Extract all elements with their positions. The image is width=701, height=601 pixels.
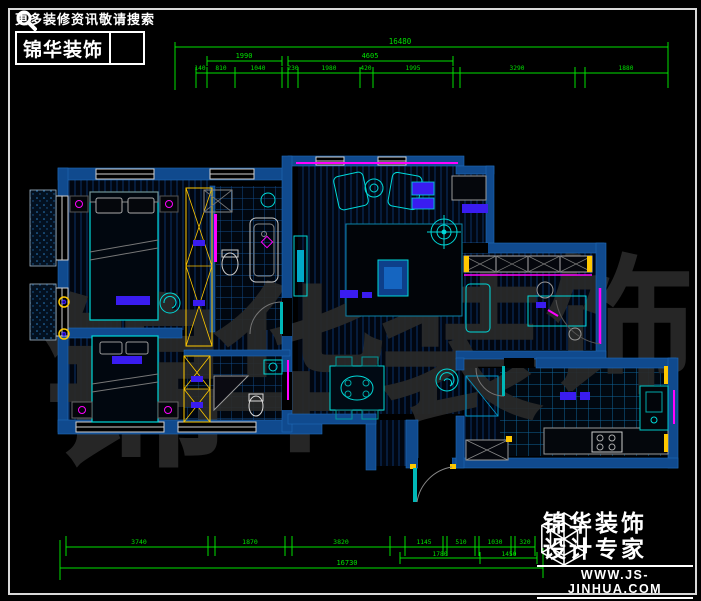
dim-label: 16480	[389, 37, 412, 46]
dim-label: 510	[455, 539, 466, 546]
dim-label: 1870	[242, 538, 258, 546]
dim-label: 1980	[322, 65, 337, 72]
dim-label: 420	[360, 65, 371, 72]
top-dimension-labels: 16480 1990 4605 140 810 1040 230 1980 42…	[194, 37, 633, 72]
logo-divider	[109, 33, 111, 63]
bottom-dimension-labels: 3740 1870 3820 1145 510 1030 320 1780 14…	[131, 538, 531, 567]
dim-label: 1030	[488, 539, 503, 546]
dim-label: 3290	[510, 65, 525, 72]
niche-cabinet	[452, 176, 486, 200]
nightstand	[70, 196, 88, 212]
dim-label: 1995	[406, 65, 421, 72]
dim-label: 320	[519, 539, 530, 546]
door-leaf	[280, 302, 283, 334]
dim-label: 810	[215, 65, 226, 72]
sofa	[412, 182, 434, 195]
header-logo-text: 锦华装饰	[17, 35, 109, 62]
header-logo-box: 锦华装饰	[15, 31, 145, 65]
bay-window-bottom	[30, 284, 56, 340]
bay-window-top	[30, 190, 56, 266]
dim-label: 1145	[417, 539, 432, 546]
tv	[297, 250, 304, 282]
magenta-trim	[214, 214, 217, 262]
entry-door-leaf	[413, 468, 417, 502]
dim-label: 230	[287, 65, 298, 72]
footer-brand: 锦华装饰 设计专家 WWW.JS-JINHUA.COM	[537, 511, 693, 599]
door-leaf	[502, 366, 505, 396]
dim-label: 1040	[251, 65, 266, 72]
cad-canvas: 锦 华 装 饰	[0, 0, 701, 601]
dim-label: 4605	[362, 52, 379, 60]
dim-label: 3820	[333, 538, 349, 546]
dim-label: 16730	[336, 559, 357, 567]
nightstand	[158, 402, 178, 418]
dim-label: 140	[194, 65, 205, 72]
bed-runner	[116, 296, 150, 305]
top-dimension-chain	[175, 42, 668, 90]
header-brand: 更多装修资讯敬请搜索 锦华装饰	[15, 9, 155, 65]
nightstand	[160, 196, 178, 212]
dim-label: 1880	[619, 65, 634, 72]
entry-door-swing	[417, 467, 452, 502]
dim-label: 1780	[433, 551, 448, 558]
dim-label: 3740	[131, 538, 147, 546]
nightstand	[72, 402, 92, 418]
dim-label: 1990	[236, 52, 253, 60]
dining-table	[330, 366, 384, 410]
dim-label: 1450	[502, 551, 517, 558]
website-link[interactable]: WWW.JS-JINHUA.COM	[537, 565, 693, 599]
